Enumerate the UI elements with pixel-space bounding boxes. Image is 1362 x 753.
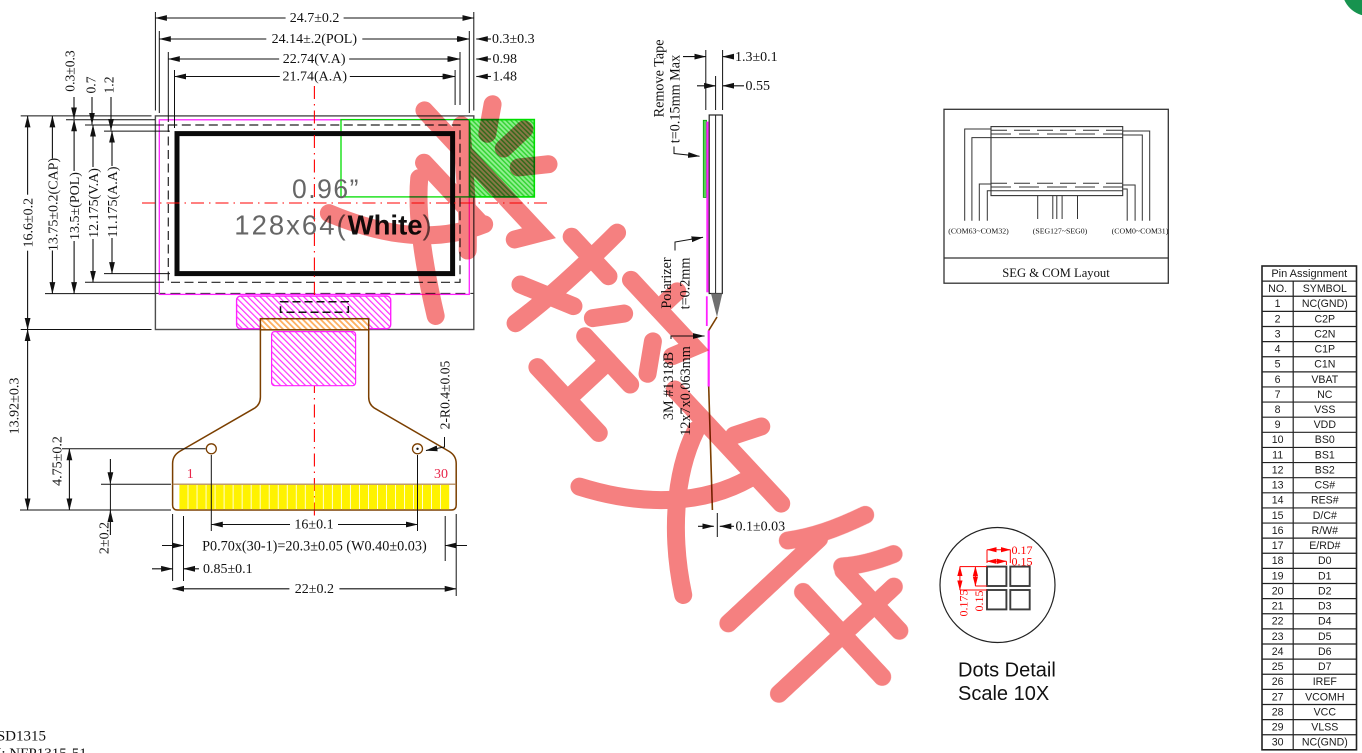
svg-text:12: 12	[1272, 464, 1284, 476]
svg-text:3: 3	[1275, 328, 1281, 340]
svg-text:VSS: VSS	[1314, 404, 1335, 416]
svg-text:D1: D1	[1318, 570, 1332, 582]
svg-text:D3: D3	[1318, 601, 1332, 613]
svg-text:D0: D0	[1318, 555, 1332, 567]
svg-text:D6: D6	[1318, 646, 1332, 658]
svg-text:23: 23	[1272, 631, 1284, 643]
svg-text:16±0.1: 16±0.1	[294, 518, 333, 533]
svg-text:15: 15	[1272, 510, 1284, 522]
svg-text:2: 2	[1275, 313, 1281, 325]
svg-text:29: 29	[1272, 722, 1284, 734]
svg-text:1: 1	[187, 467, 194, 482]
svg-text:(COM0~COM31): (COM0~COM31)	[1112, 227, 1169, 236]
svg-text:1.2: 1.2	[101, 76, 116, 93]
svg-text:Pin Assignment: Pin Assignment	[1271, 268, 1347, 280]
svg-text:27: 27	[1272, 691, 1284, 703]
svg-text:17: 17	[1272, 540, 1284, 552]
svg-text:Scale 10X: Scale 10X	[958, 683, 1049, 705]
svg-text:4: 4	[1275, 344, 1281, 356]
svg-text:D/C#: D/C#	[1313, 510, 1337, 522]
svg-text:C2P: C2P	[1314, 313, 1335, 325]
svg-text:VLSS: VLSS	[1311, 722, 1338, 734]
svg-text:16: 16	[1272, 525, 1284, 537]
svg-text:(SEG127~SEG0): (SEG127~SEG0)	[1033, 227, 1088, 236]
svg-text:BS0: BS0	[1315, 434, 1335, 446]
svg-text:4.75±0.2: 4.75±0.2	[51, 436, 66, 486]
svg-text:1.3±0.1: 1.3±0.1	[735, 50, 778, 65]
svg-text:P0.70x(30-1)=20.3±0.05 (W0.40±: P0.70x(30-1)=20.3±0.05 (W0.40±0.03)	[202, 539, 427, 555]
svg-text:C1N: C1N	[1314, 359, 1335, 371]
svg-text:21: 21	[1272, 601, 1284, 613]
svg-text:8: 8	[1275, 404, 1281, 416]
svg-text:Dots Detail: Dots Detail	[958, 660, 1056, 682]
svg-text:11.175(A.A): 11.175(A.A)	[106, 166, 121, 237]
svg-text:30: 30	[434, 467, 448, 482]
svg-text:0.3±0.3: 0.3±0.3	[62, 50, 77, 92]
svg-text:9: 9	[1275, 419, 1281, 431]
svg-text:16.6±0.2: 16.6±0.2	[22, 198, 37, 248]
svg-text:Remove Tape: Remove Tape	[652, 39, 668, 117]
svg-text:SEG & COM Layout: SEG & COM Layout	[1002, 266, 1110, 280]
svg-text:22.74(V.A): 22.74(V.A)	[283, 52, 346, 67]
svg-text:18: 18	[1272, 555, 1284, 567]
svg-text:NC: NC	[1317, 389, 1333, 401]
svg-text:C1P: C1P	[1314, 344, 1335, 356]
svg-text:1.48: 1.48	[493, 70, 518, 85]
svg-text:0.55: 0.55	[746, 79, 771, 94]
svg-text:24.14±.2(POL): 24.14±.2(POL)	[272, 32, 358, 47]
svg-text:IREF: IREF	[1313, 676, 1338, 688]
svg-text:2±0.2: 2±0.2	[98, 522, 113, 554]
svg-text:VCOMH: VCOMH	[1305, 691, 1344, 703]
svg-text:25: 25	[1272, 661, 1284, 673]
svg-text:NC(GND): NC(GND)	[1302, 737, 1348, 749]
svg-text:0.85±0.1: 0.85±0.1	[203, 562, 253, 577]
svg-text:BS2: BS2	[1315, 464, 1335, 476]
svg-text:0.15: 0.15	[1012, 555, 1033, 569]
svg-text:NO.: NO.	[1268, 283, 1287, 295]
svg-text:13.75±0.2(CAP): 13.75±0.2(CAP)	[46, 158, 61, 252]
svg-text:26: 26	[1272, 676, 1284, 688]
svg-text:VDD: VDD	[1314, 419, 1337, 431]
svg-text:28: 28	[1272, 706, 1284, 718]
svg-text:13.92±0.3: 13.92±0.3	[8, 378, 23, 435]
svg-text:6: 6	[1275, 374, 1281, 386]
svg-text:D7: D7	[1318, 661, 1332, 673]
svg-text:10: 10	[1272, 434, 1284, 446]
svg-text:19: 19	[1272, 570, 1284, 582]
svg-text:0.7: 0.7	[83, 76, 98, 93]
svg-text:5: 5	[1275, 359, 1281, 371]
svg-text:(COM63~COM32): (COM63~COM32)	[948, 227, 1009, 236]
svg-text:1: 1	[1275, 298, 1281, 310]
svg-text:2-R0.4±0.05: 2-R0.4±0.05	[437, 360, 452, 429]
svg-text:13.5±(POL): 13.5±(POL)	[68, 172, 83, 240]
svg-text:20: 20	[1272, 585, 1284, 597]
svg-text:24: 24	[1272, 646, 1284, 658]
svg-text:VBAT: VBAT	[1311, 374, 1338, 386]
svg-text:7: 7	[1275, 389, 1281, 401]
svg-text:D5: D5	[1318, 631, 1332, 643]
svg-text:SYMBOL: SYMBOL	[1303, 283, 1347, 295]
svg-text:E/RD#: E/RD#	[1309, 540, 1340, 552]
svg-text:30: 30	[1272, 737, 1284, 749]
svg-text:CS#: CS#	[1314, 480, 1335, 492]
svg-text:NC(GND): NC(GND)	[1302, 298, 1348, 310]
svg-text:VCC: VCC	[1314, 706, 1337, 718]
svg-text:0.3±0.3: 0.3±0.3	[492, 32, 535, 47]
svg-text:22±0.2: 22±0.2	[295, 582, 334, 597]
svg-text:BS1: BS1	[1315, 449, 1335, 461]
svg-text:13: 13	[1272, 480, 1284, 492]
svg-text:0.98: 0.98	[493, 52, 518, 67]
svg-text:D4: D4	[1318, 616, 1332, 628]
svg-text:R/W#: R/W#	[1312, 525, 1339, 537]
svg-text:0.1±0.03: 0.1±0.03	[736, 520, 786, 535]
svg-text:t=0.15mm Max: t=0.15mm Max	[668, 55, 684, 143]
svg-text:C2N: C2N	[1314, 328, 1335, 340]
svg-text:24.7±0.2: 24.7±0.2	[290, 11, 340, 26]
svg-text:SSD1315: SSD1315	[0, 729, 46, 745]
svg-text:22: 22	[1272, 616, 1284, 628]
svg-text:0.96”: 0.96”	[292, 174, 360, 204]
svg-text:0.175: 0.175	[956, 590, 970, 617]
svg-text:P/N: NFP1315-51: P/N: NFP1315-51	[0, 746, 87, 753]
svg-text:21.74(A.A): 21.74(A.A)	[283, 70, 348, 85]
svg-text:14: 14	[1272, 495, 1284, 507]
svg-text:0.15: 0.15	[972, 591, 986, 612]
svg-text:D2: D2	[1318, 585, 1332, 597]
svg-text:11: 11	[1272, 449, 1283, 461]
svg-text:RES#: RES#	[1311, 495, 1339, 507]
svg-text:12.175(V.A): 12.175(V.A)	[87, 168, 102, 238]
